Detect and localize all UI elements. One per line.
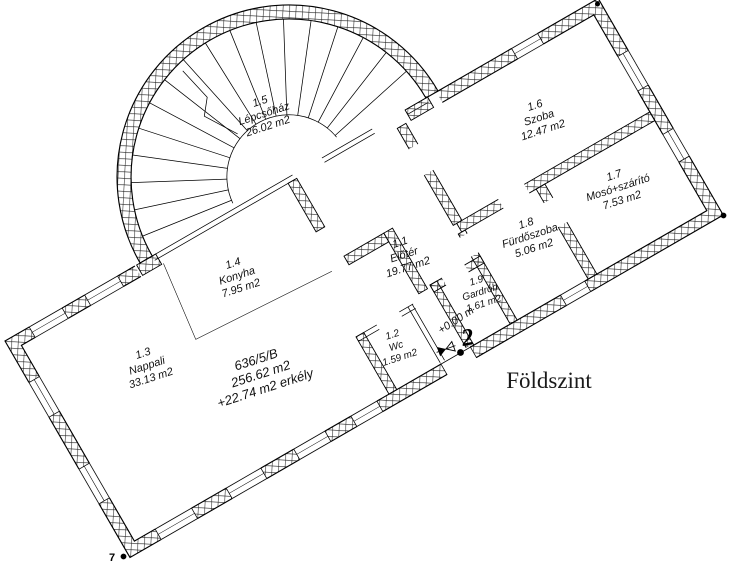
entrance-number: 2 [459, 324, 476, 352]
window [560, 281, 591, 307]
building-plan [0, 0, 725, 559]
corner-dot [121, 554, 127, 560]
windows-north-wing [511, 33, 544, 60]
floor-plan-page: 1.1 Előtér 19.77 m2 1.2 Wc 1.59 m2 1.3 N… [0, 0, 729, 569]
window [226, 468, 267, 500]
window [293, 431, 331, 461]
window [29, 307, 69, 338]
window [84, 275, 124, 306]
wall-eloter-szoba [397, 123, 462, 225]
corner-number: 7 [109, 552, 115, 564]
floor-plan-drawing: 1.1 Előtér 19.77 m2 1.2 Wc 1.59 m2 1.3 N… [0, 0, 729, 569]
window [155, 508, 198, 541]
door-opening [441, 263, 470, 286]
window [78, 463, 110, 504]
door-opening [408, 143, 435, 176]
drawing-title: Földszint [506, 368, 592, 393]
window [617, 50, 649, 91]
wall-eloter-l-horizontal [344, 233, 389, 265]
room-label-moso-szarito: 1.7 Mosó+szárító 7.53 m2 [581, 160, 656, 217]
window [662, 128, 690, 162]
room-label-nappali: 1.3 Nappali 33.13 m2 [119, 341, 174, 391]
wall-konyha-eloter [288, 178, 325, 231]
corner-dot [595, 2, 600, 7]
level-marker-icon [435, 341, 457, 357]
room-label-konyha: 1.4 Konyha 7.95 m2 [212, 252, 262, 300]
corner-dot [721, 213, 727, 219]
door-opening [497, 183, 530, 210]
staircase-break-mark [179, 63, 237, 144]
window [511, 33, 544, 60]
room-label-szoba: 1.6 Szoba 12.47 m2 [511, 93, 566, 143]
window [28, 376, 60, 417]
unit-summary-label: 636/5/B 256.62 m2 +22.74 m2 erkély [206, 336, 317, 410]
window [351, 401, 384, 428]
